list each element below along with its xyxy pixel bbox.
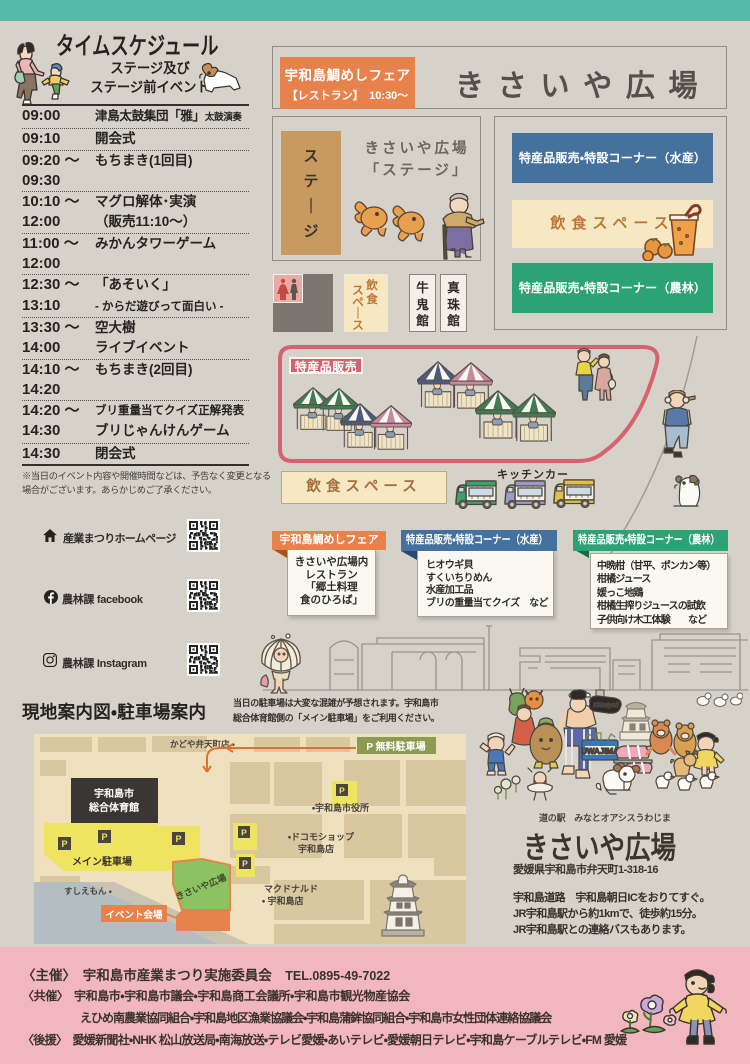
svg-text:すしえもん ・: すしえもん ・ (64, 886, 112, 896)
svg-text:・ドコモショップ: ・ドコモショップ (288, 831, 355, 842)
svg-text:・ 宇和島店: ・ 宇和島店 (262, 895, 304, 906)
svg-text:P 無料駐車場: P 無料駐車場 (366, 740, 425, 753)
svg-text:マクドナルド: マクドナルド (264, 884, 318, 894)
svg-text:P: P (242, 859, 248, 869)
svg-text:P: P (101, 832, 107, 842)
svg-text:KiSaiya!!: KiSaiya!! (593, 702, 619, 709)
svg-text:総合体育館: 総合体育館 (88, 801, 139, 814)
svg-text:メイン駐車場: メイン駐車場 (72, 855, 132, 868)
svg-text:P: P (175, 834, 181, 844)
svg-text:宇和島店: 宇和島店 (298, 843, 334, 854)
svg-text:UWAJIMA: UWAJIMA (581, 747, 619, 756)
svg-text:P: P (241, 828, 247, 838)
svg-text:イベント会場: イベント会場 (105, 909, 163, 921)
svg-text:宇和島市: 宇和島市 (94, 787, 134, 800)
svg-text:・宇和島市役所: ・宇和島市役所 (312, 802, 369, 813)
svg-text:P: P (339, 786, 345, 796)
svg-text:P: P (61, 839, 67, 849)
